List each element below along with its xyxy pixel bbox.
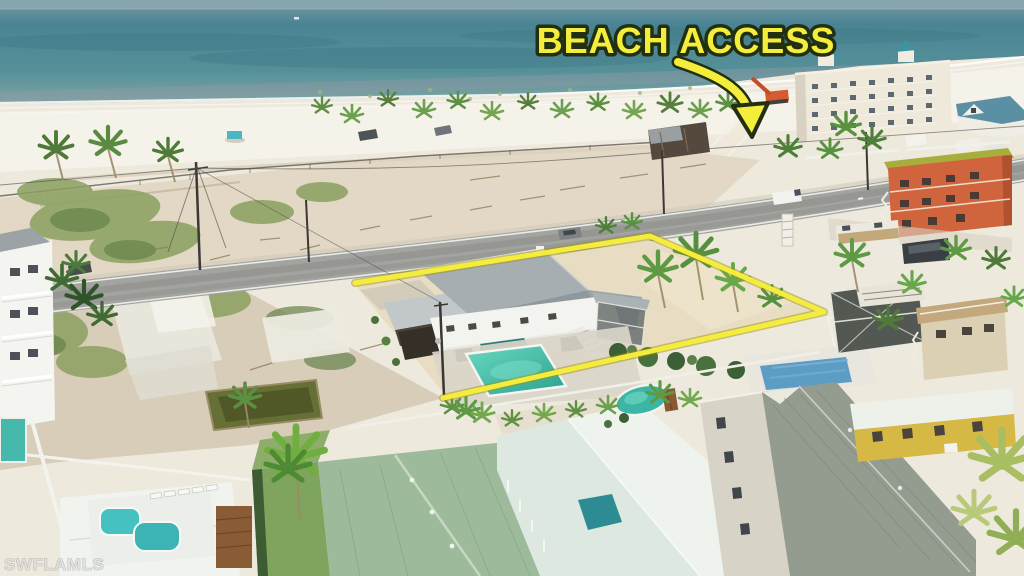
aerial-photo-canvas: BEACH ACCESS SWFLAMLS	[0, 0, 1024, 576]
ladder-stand	[782, 214, 793, 246]
tan-stilt-house	[913, 296, 1008, 380]
wood-deck-tower	[216, 506, 252, 568]
beach-access-label: BEACH ACCESS	[537, 20, 836, 61]
watermark: SWFLAMLS	[4, 555, 104, 574]
neighbor-pool-bottom-left	[0, 418, 26, 462]
white-three-story-house	[0, 228, 55, 430]
orange-three-story-building	[882, 148, 1014, 238]
aerial-photo: BEACH ACCESS SWFLAMLS	[0, 0, 1024, 576]
lifeguard-tent	[225, 130, 245, 143]
